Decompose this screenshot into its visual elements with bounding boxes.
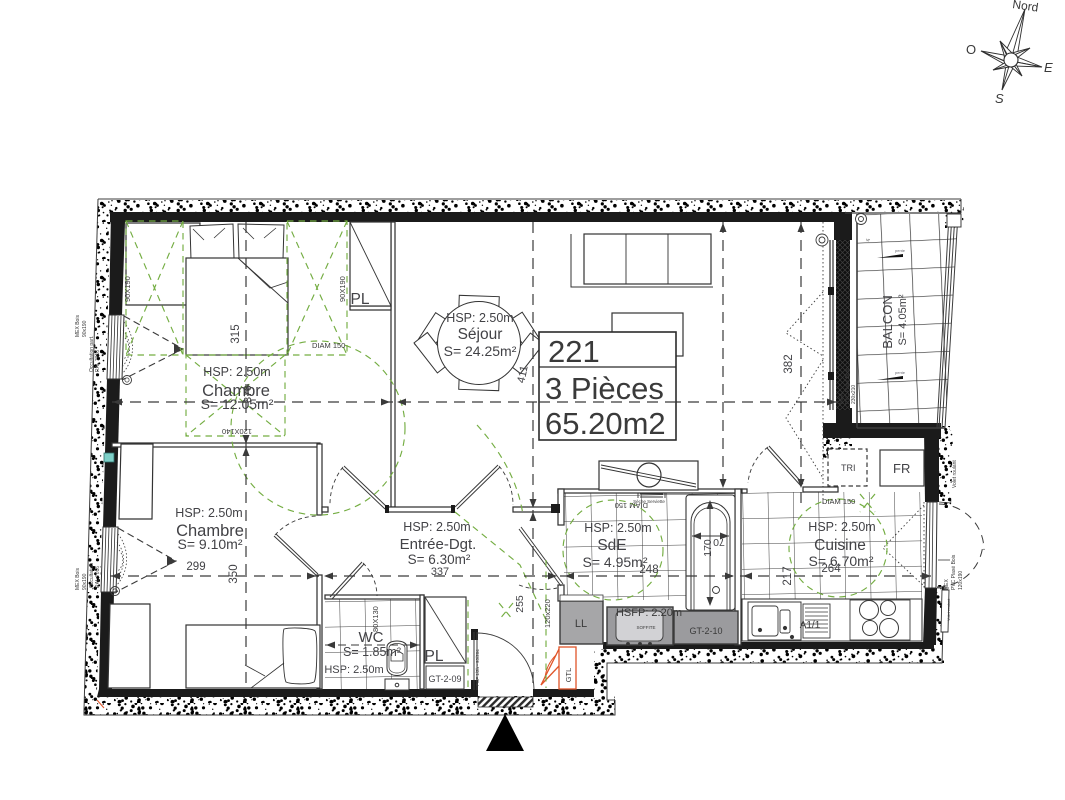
- svg-text:315: 315: [230, 324, 242, 343]
- svg-text:SOFFITE: SOFFITE: [637, 625, 656, 630]
- svg-text:264: 264: [821, 563, 841, 575]
- svg-text:HSFP: 2.20m: HSFP: 2.20m: [616, 607, 682, 619]
- svg-text:HSP: 2.50m: HSP: 2.50m: [446, 311, 513, 325]
- svg-text:376: 376: [242, 385, 254, 403]
- svg-text:S= 9.10m²: S= 9.10m²: [178, 536, 243, 552]
- svg-text:E: E: [1044, 60, 1053, 75]
- svg-text:GTL: GTL: [564, 668, 573, 683]
- svg-text:S= 4.95m²: S= 4.95m²: [583, 554, 648, 570]
- svg-text:MEX Bois: MEX Bois: [75, 568, 81, 590]
- svg-text:pente: pente: [895, 370, 906, 375]
- svg-text:217: 217: [782, 566, 794, 585]
- svg-text:90X190: 90X190: [338, 276, 347, 302]
- svg-text:Cuisine: Cuisine: [814, 537, 866, 554]
- svg-text:3 Pièces: 3 Pièces: [545, 371, 664, 406]
- svg-text:120X140: 120X140: [222, 427, 252, 436]
- svg-text:BALCON: BALCON: [880, 295, 895, 348]
- svg-text:299: 299: [186, 561, 205, 573]
- svg-text:Sèche Serviette: Sèche Serviette: [633, 499, 665, 504]
- svg-text:SdE: SdE: [597, 537, 626, 554]
- svg-text:230x210: 230x210: [851, 385, 857, 404]
- svg-text:DIAM 150: DIAM 150: [312, 341, 345, 350]
- svg-text:PL: PL: [351, 291, 370, 308]
- svg-text:Volet roulant: Volet roulant: [946, 598, 951, 621]
- svg-text:S= 12.05m²: S= 12.05m²: [201, 396, 274, 412]
- svg-text:HSP: 2.50m: HSP: 2.50m: [203, 365, 270, 379]
- svg-text:MEX: MEX: [944, 579, 950, 591]
- svg-text:A1/1: A1/1: [800, 620, 821, 631]
- svg-text:S= 4.05m²: S= 4.05m²: [897, 294, 909, 345]
- svg-text:70: 70: [713, 536, 725, 548]
- svg-text:Volet roulant: Volet roulant: [952, 460, 958, 488]
- svg-text:O: O: [966, 42, 976, 57]
- svg-text:90x190: 90x190: [82, 320, 88, 337]
- svg-text:FR: FR: [893, 461, 910, 476]
- svg-text:HSP: 2.50m: HSP: 2.50m: [324, 664, 383, 676]
- svg-text:S= 6.70m²: S= 6.70m²: [809, 553, 874, 569]
- svg-text:HSP: 2.50m: HSP: 2.50m: [403, 520, 470, 534]
- svg-text:350: 350: [228, 564, 240, 583]
- svg-text:HSP: 2.50m: HSP: 2.50m: [175, 506, 242, 520]
- svg-text:S= 24.25m²: S= 24.25m²: [444, 343, 517, 359]
- svg-text:382: 382: [783, 354, 795, 373]
- svg-text:170: 170: [702, 539, 714, 557]
- svg-text:TRI: TRI: [841, 463, 856, 473]
- svg-text:65.20m2: 65.20m2: [545, 406, 666, 441]
- svg-text:LL: LL: [575, 618, 587, 630]
- svg-text:PCF 1/2h - 93/204: PCF 1/2h - 93/204: [475, 649, 480, 686]
- svg-text:PVC Plaxé Bois: PVC Plaxé Bois: [951, 554, 957, 590]
- svg-text:RAL 7016: RAL 7016: [95, 350, 101, 372]
- svg-text:90x190: 90x190: [82, 573, 88, 590]
- svg-text:S= 6.30m²: S= 6.30m²: [408, 552, 471, 567]
- svg-text:120x220: 120x220: [543, 599, 552, 628]
- svg-text:GT-2-10: GT-2-10: [689, 626, 722, 636]
- svg-text:90X190: 90X190: [123, 276, 132, 302]
- svg-text:S: S: [995, 91, 1004, 106]
- svg-text:GT-2-09: GT-2-09: [428, 674, 461, 684]
- svg-text:DIAM 150: DIAM 150: [822, 497, 855, 506]
- svg-text:Séjour: Séjour: [458, 326, 503, 343]
- svg-text:WC: WC: [359, 629, 384, 646]
- svg-text:248: 248: [639, 564, 658, 576]
- svg-text:pente: pente: [895, 248, 906, 253]
- svg-text:HSP: 2.50m: HSP: 2.50m: [584, 521, 651, 535]
- svg-text:337: 337: [431, 566, 449, 578]
- svg-text:RAL 7016: RAL 7016: [95, 566, 101, 588]
- svg-text:PL: PL: [425, 648, 444, 665]
- svg-text:120x190: 120x190: [958, 571, 964, 590]
- svg-text:S= 1.85m²: S= 1.85m²: [343, 645, 401, 659]
- svg-text:221: 221: [548, 334, 600, 369]
- svg-text:MEX Bois: MEX Bois: [75, 315, 81, 337]
- svg-text:HSP: 2.50m: HSP: 2.50m: [808, 520, 875, 534]
- svg-text:255: 255: [514, 595, 526, 613]
- svg-text:Entrée-Dgt.: Entrée-Dgt.: [400, 536, 477, 553]
